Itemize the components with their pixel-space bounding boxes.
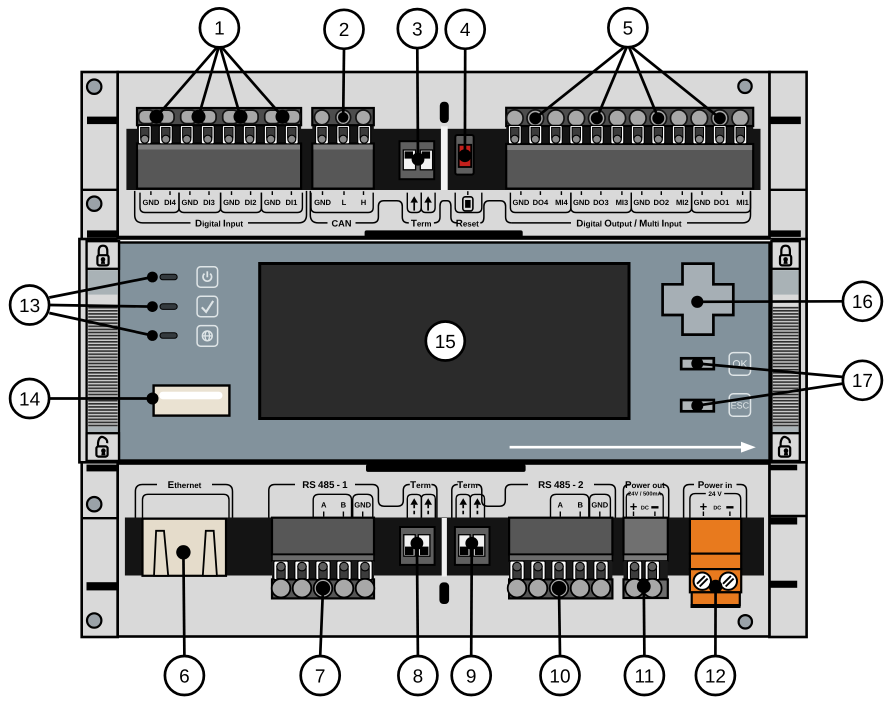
svg-text:GND: GND [591, 500, 608, 509]
svg-text:DI2: DI2 [245, 198, 257, 207]
svg-text:DI4: DI4 [164, 198, 177, 207]
svg-text:1: 1 [214, 19, 225, 40]
svg-text:RS 485 - 2: RS 485 - 2 [538, 480, 584, 491]
svg-text:3: 3 [412, 19, 423, 40]
svg-text:GND: GND [573, 198, 590, 207]
svg-text:GND: GND [633, 198, 650, 207]
svg-text:24 V: 24 V [708, 491, 722, 498]
svg-text:16: 16 [852, 292, 873, 313]
svg-text:14: 14 [19, 389, 41, 410]
svg-text:MI3: MI3 [616, 198, 629, 207]
svg-text:15: 15 [435, 332, 456, 353]
svg-text:2: 2 [339, 20, 350, 41]
svg-text:Ethernet: Ethernet [168, 480, 202, 491]
svg-text:GND: GND [264, 198, 281, 207]
svg-text:6: 6 [179, 666, 190, 687]
svg-text:GND: GND [694, 198, 711, 207]
svg-text:DC: DC [713, 505, 721, 511]
svg-text:B: B [341, 500, 347, 509]
svg-text:Digital Output / Multi Input: Digital Output / Multi Input [576, 218, 682, 229]
svg-text:GND: GND [512, 198, 529, 207]
svg-text:B: B [577, 500, 583, 509]
svg-text:Reset: Reset [456, 218, 479, 229]
svg-text:DI1: DI1 [285, 198, 298, 207]
svg-text:7: 7 [315, 666, 326, 687]
svg-text:L: L [342, 198, 347, 207]
svg-text:12: 12 [705, 666, 726, 687]
svg-text:17: 17 [852, 371, 873, 392]
svg-text:DO3: DO3 [593, 198, 609, 207]
svg-text:24V / 500mA: 24V / 500mA [628, 491, 662, 498]
svg-text:10: 10 [549, 666, 570, 687]
svg-text:GND: GND [142, 198, 159, 207]
svg-text:Term: Term [410, 480, 431, 491]
svg-text:H: H [361, 198, 366, 207]
svg-text:A: A [321, 500, 327, 509]
svg-text:8: 8 [413, 666, 424, 687]
svg-text:DO2: DO2 [653, 198, 669, 207]
svg-text:GND: GND [354, 500, 371, 509]
svg-text:MI1: MI1 [736, 198, 749, 207]
svg-text:MI4: MI4 [555, 198, 568, 207]
svg-text:5: 5 [623, 19, 634, 40]
svg-text:Term: Term [411, 218, 432, 229]
svg-text:9: 9 [466, 666, 477, 687]
svg-text:DO1: DO1 [714, 198, 730, 207]
svg-text:Term: Term [457, 480, 478, 491]
svg-text:GND: GND [223, 198, 240, 207]
svg-text:11: 11 [635, 666, 655, 687]
svg-text:MI2: MI2 [676, 198, 689, 207]
svg-text:GND: GND [181, 198, 198, 207]
svg-text:13: 13 [19, 296, 40, 317]
svg-text:DC: DC [641, 505, 649, 511]
svg-text:Power in: Power in [698, 480, 733, 491]
svg-text:DO4: DO4 [533, 198, 549, 207]
svg-text:Digital Input: Digital Input [195, 218, 243, 229]
svg-text:CAN: CAN [332, 218, 352, 228]
svg-text:ESC: ESC [731, 400, 750, 410]
svg-text:DI3: DI3 [203, 198, 215, 207]
svg-text:A: A [558, 500, 564, 509]
svg-text:Power out: Power out [625, 480, 665, 491]
svg-text:RS 485 - 1: RS 485 - 1 [302, 480, 348, 491]
svg-text:GND: GND [314, 198, 331, 207]
svg-text:4: 4 [460, 20, 471, 41]
